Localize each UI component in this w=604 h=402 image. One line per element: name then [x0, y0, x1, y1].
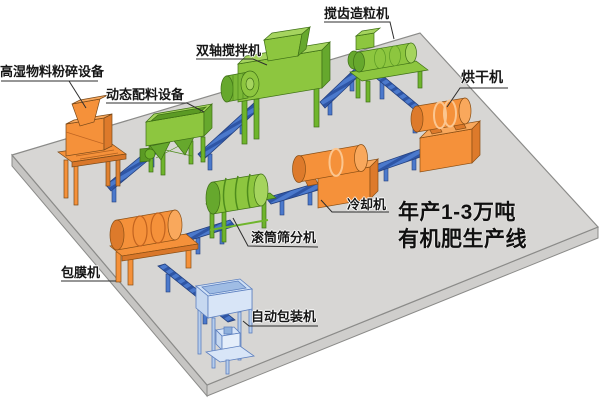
label-crusher: 高湿物料粉碎设备: [0, 64, 104, 79]
organic-fertilizer-production-line-diagram: 高湿物料粉碎设备 动态配料设备 双轴搅拌机 搅齿造粒机 烘干机 冷却机 滚筒筛分…: [0, 0, 604, 402]
label-screener: 滚筒筛分机: [251, 230, 316, 245]
label-cooler: 冷却机: [347, 197, 386, 212]
label-coater: 包膜机: [61, 265, 100, 280]
label-dryer: 烘干机: [461, 70, 503, 85]
label-mixer: 双轴搅拌机: [196, 43, 261, 58]
label-granulator: 搅齿造粒机: [324, 6, 389, 21]
title-line1: 年产1-3万吨: [398, 199, 527, 226]
production-line-title: 年产1-3万吨 有机肥生产线: [398, 199, 527, 253]
label-batching: 动态配料设备: [106, 87, 184, 102]
title-line2: 有机肥生产线: [398, 226, 527, 253]
label-packer: 自动包装机: [251, 309, 316, 324]
